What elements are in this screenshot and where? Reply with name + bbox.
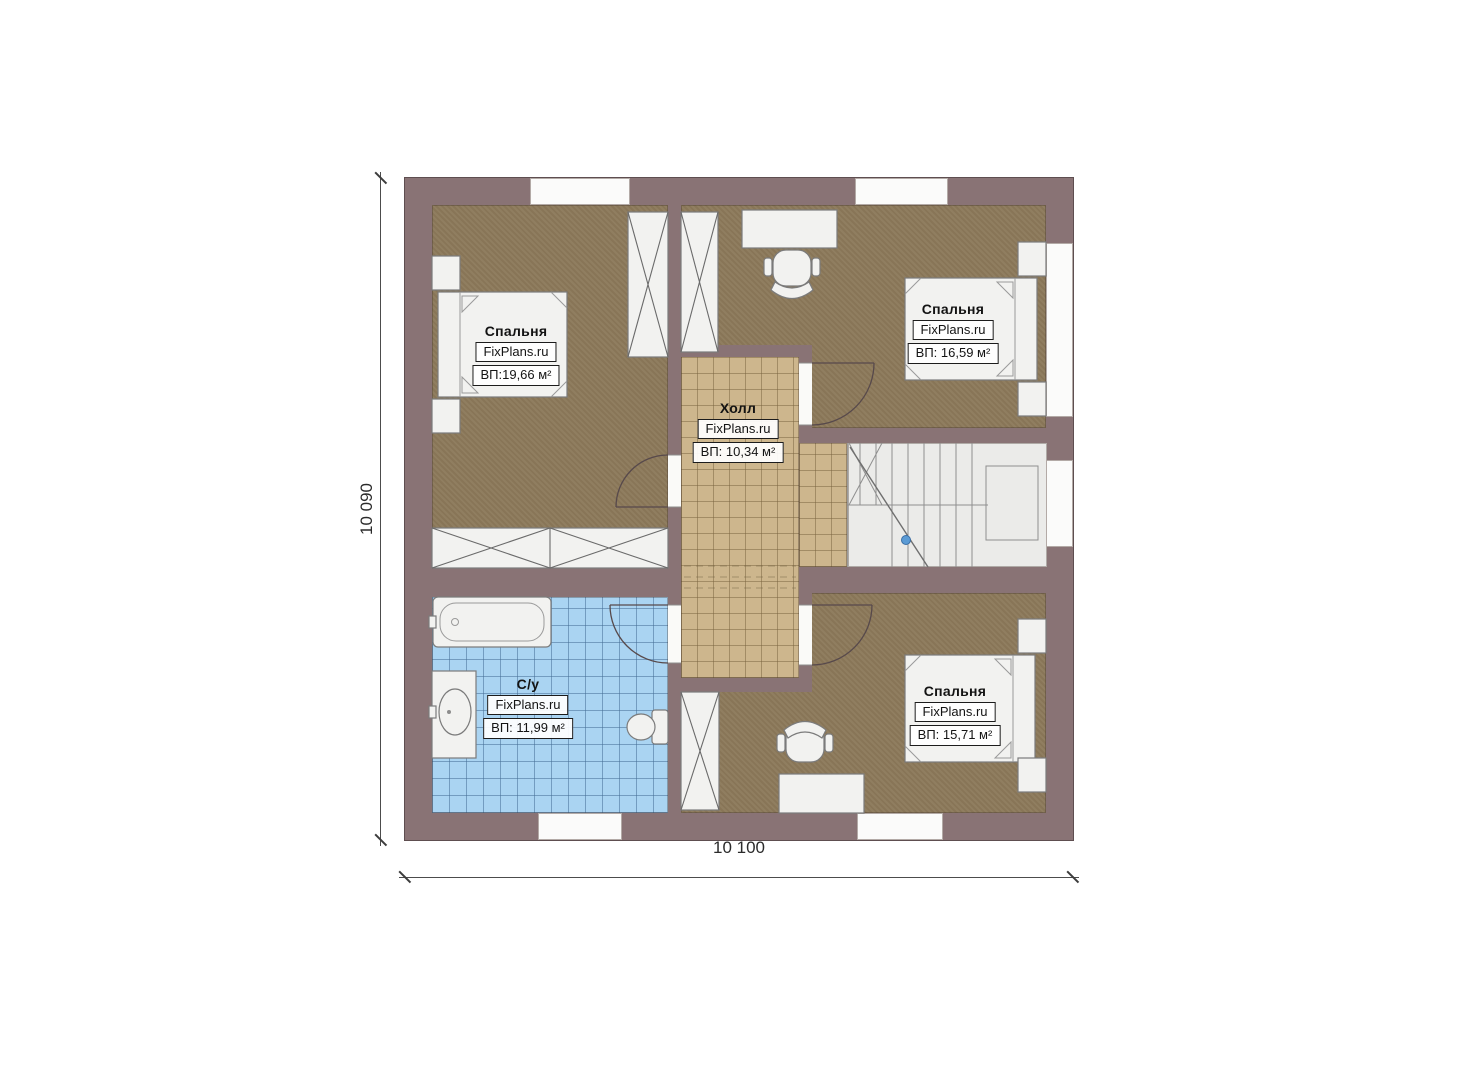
door-opening-bedroom-top-right — [799, 363, 812, 425]
watermark: FixPlans.ru — [914, 702, 995, 722]
floor-staircase — [847, 443, 1047, 567]
watermark: FixPlans.ru — [912, 320, 993, 340]
room-label-bedroom-bottom-right: Спальня FixPlans.ru ВП: 15,71 м² — [910, 683, 1001, 746]
door-opening-bedroom-top-left — [668, 455, 681, 507]
room-area: ВП: 15,71 м² — [910, 725, 1001, 745]
wall-above-stairs — [799, 428, 1046, 443]
wall-hall-top — [668, 345, 812, 357]
room-label-bedroom-top-left: Спальня FixPlans.ru ВП:19,66 м² — [472, 323, 559, 386]
room-name: Холл — [720, 400, 756, 416]
room-name: Спальня — [924, 683, 987, 699]
dimension-tick — [375, 172, 387, 184]
window-right-stairs — [1046, 460, 1073, 547]
dimension-tick — [375, 834, 387, 846]
watermark: FixPlans.ru — [697, 419, 778, 439]
room-name: Спальня — [922, 301, 985, 317]
room-area: ВП: 10,34 м² — [693, 442, 784, 462]
room-name: С/у — [517, 676, 540, 692]
window-top-left — [530, 178, 630, 205]
wall-below-stairs — [799, 567, 1046, 593]
floor-bedroom-top-left — [432, 205, 668, 568]
floor-plan-canvas: 10 090 10 100 — [0, 0, 1474, 1080]
room-area: ВП: 16,59 м² — [908, 343, 999, 363]
watermark: FixPlans.ru — [475, 342, 556, 362]
watermark: FixPlans.ru — [487, 695, 568, 715]
door-opening-bathroom — [668, 605, 681, 663]
window-bottom-left — [538, 813, 622, 840]
room-label-hall: Холл FixPlans.ru ВП: 10,34 м² — [693, 400, 784, 463]
window-bottom-right — [857, 813, 943, 840]
room-area: ВП:19,66 м² — [472, 365, 559, 385]
door-opening-bedroom-bottom-right — [799, 605, 812, 665]
wall-bathroom-top — [432, 568, 668, 597]
dimension-line-vertical — [380, 172, 381, 846]
window-top-right — [855, 178, 948, 205]
room-area: ВП: 11,99 м² — [483, 718, 573, 738]
room-label-bathroom: С/у FixPlans.ru ВП: 11,99 м² — [483, 676, 573, 739]
room-name: Спальня — [485, 323, 548, 339]
window-right-bedroom — [1046, 243, 1073, 417]
floor-hall-extension — [799, 443, 847, 567]
dimension-width-label: 10 100 — [713, 838, 765, 858]
dimension-line-horizontal — [399, 877, 1079, 878]
dimension-height-label: 10 090 — [357, 483, 377, 535]
wall-hall-bottom — [668, 678, 812, 692]
wall-between-top-bedrooms — [668, 205, 681, 345]
room-label-bedroom-top-right: Спальня FixPlans.ru ВП: 16,59 м² — [908, 301, 999, 364]
